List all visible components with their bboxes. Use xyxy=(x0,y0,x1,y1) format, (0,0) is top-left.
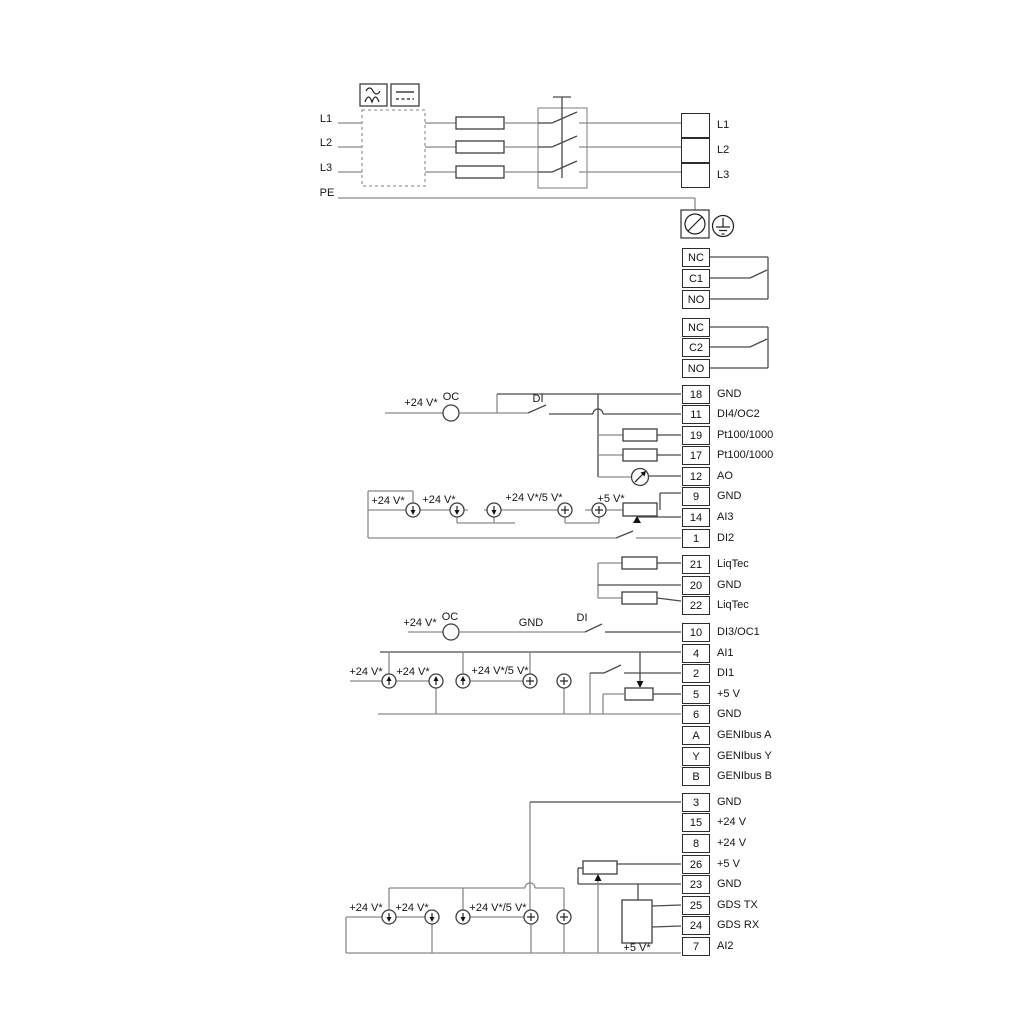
potentiometer-ai2 xyxy=(583,861,617,874)
liqtec-resistor-2 xyxy=(622,592,657,604)
terminal-label-8: +24 V xyxy=(717,837,746,849)
terminal-25: 25 xyxy=(682,896,710,915)
terminal-label-19: Pt100/1000 xyxy=(717,429,773,441)
terminal-label-17: Pt100/1000 xyxy=(717,449,773,461)
voltage-source-icon xyxy=(557,674,571,688)
gnd-label: GND xyxy=(519,617,543,629)
terminal-label-A: GENIbus A xyxy=(717,729,771,741)
voltage-source-icon xyxy=(592,503,606,517)
liqtec-wiring xyxy=(598,557,681,604)
terminal-label-B: GENIbus B xyxy=(717,770,772,782)
terminal-label-21: LiqTec xyxy=(717,558,749,570)
terminal-11: 11 xyxy=(682,405,710,424)
v24-label: +24 V* xyxy=(404,397,437,409)
terminal-15: 15 xyxy=(682,813,710,832)
v24-label: +24 V* xyxy=(349,666,382,678)
terminal-Y: Y xyxy=(682,747,710,766)
mains-l2-label: L2 xyxy=(320,137,332,149)
relay-2-blade xyxy=(750,339,767,347)
v24-label: +24 V* xyxy=(422,494,455,506)
relay-1-contact xyxy=(710,257,768,299)
terminal-label-18: GND xyxy=(717,388,741,400)
terminal-22: 22 xyxy=(682,596,710,615)
terminal-NC: NC xyxy=(682,248,710,267)
mains-l3-label: L3 xyxy=(320,162,332,174)
current-source-icon xyxy=(382,674,396,688)
gds-sensor-box xyxy=(622,900,652,943)
oc1-circle xyxy=(443,624,459,640)
terminal-NO: NO xyxy=(682,359,710,378)
terminal-NO: NO xyxy=(682,290,710,309)
terminal-label-6: GND xyxy=(717,708,741,720)
terminal-12: 12 xyxy=(682,467,710,486)
terminal-2: 2 xyxy=(682,664,710,683)
mains-out-terminal-L3 xyxy=(681,163,710,188)
terminal-9: 9 xyxy=(682,487,710,506)
terminal-label-1: DI2 xyxy=(717,532,734,544)
terminal-label-14: AI3 xyxy=(717,511,734,523)
terminal-label-11: DI4/OC2 xyxy=(717,408,760,420)
mains-l1-label: L1 xyxy=(320,113,332,125)
terminal-NC: NC xyxy=(682,318,710,337)
main-switch-blades xyxy=(538,112,681,172)
current-sink-icon xyxy=(487,503,501,517)
oc-label: OC xyxy=(442,611,459,623)
relay-1-blade xyxy=(750,270,767,278)
ai2-gds-wiring xyxy=(346,802,681,953)
di-label: DI xyxy=(533,393,544,405)
terminal-label-7: AI2 xyxy=(717,940,734,952)
mains-out-label-L1: L1 xyxy=(717,119,729,131)
terminal-5: 5 xyxy=(682,685,710,704)
potentiometer-ai1 xyxy=(625,688,653,700)
current-sink-icon xyxy=(406,503,420,517)
v24-label: +24 V* xyxy=(396,666,429,678)
terminal-label-2: DI1 xyxy=(717,667,734,679)
v24-5v-label: +24 V*/5 V* xyxy=(471,665,528,677)
terminal-label-10: DI3/OC1 xyxy=(717,626,760,638)
mains-out-terminal-L1 xyxy=(681,113,710,138)
terminal-20: 20 xyxy=(682,576,710,595)
fuse-l2 xyxy=(456,141,504,153)
terminal-A: A xyxy=(682,726,710,745)
terminal-label-24: GDS RX xyxy=(717,919,759,931)
terminal-3: 3 xyxy=(682,793,710,812)
terminal-19: 19 xyxy=(682,426,710,445)
v24-label: +24 V* xyxy=(395,902,428,914)
terminal-23: 23 xyxy=(682,875,710,894)
mains-out-label-L3: L3 xyxy=(717,169,729,181)
mains-out-terminal-L2 xyxy=(681,138,710,163)
voltage-source-icon xyxy=(558,503,572,517)
wiper-arrow xyxy=(595,874,602,881)
mains-out-label-L2: L2 xyxy=(717,144,729,156)
terminal-8: 8 xyxy=(682,834,710,853)
pt100-resistor-2 xyxy=(623,449,657,461)
di-label: DI xyxy=(577,612,588,624)
terminal-10: 10 xyxy=(682,623,710,642)
terminal-24: 24 xyxy=(682,916,710,935)
terminal-label-23: GND xyxy=(717,878,741,890)
oc2-circle xyxy=(443,405,459,421)
di2-switch-blade xyxy=(616,531,633,538)
ai1-di1-wiring xyxy=(350,652,681,714)
fuse-l1 xyxy=(456,117,504,129)
terminal-label-3: GND xyxy=(717,796,741,808)
earth-symbol xyxy=(713,216,734,237)
drive-input-box xyxy=(362,110,425,186)
fuse-l3 xyxy=(456,166,504,178)
relay-2-contact xyxy=(710,327,768,368)
terminal-21: 21 xyxy=(682,555,710,574)
terminal-label-22: LiqTec xyxy=(717,599,749,611)
terminal-label-20: GND xyxy=(717,579,741,591)
terminal-label-12: AO xyxy=(717,470,733,482)
terminal-1: 1 xyxy=(682,529,710,548)
v24-label: +24 V* xyxy=(349,902,382,914)
dc-symbol-box xyxy=(391,84,419,106)
terminal-label-Y: GENIbus Y xyxy=(717,750,772,762)
voltage-source-icon xyxy=(557,910,571,924)
terminal-label-25: GDS TX xyxy=(717,899,758,911)
di1-switch-blade xyxy=(604,665,621,673)
terminal-label-15: +24 V xyxy=(717,816,746,828)
v24-5v-label: +24 V*/5 V* xyxy=(505,492,562,504)
wiring-diagram: L1 L2 L3 PE +24 V* OC DI +24 V* +24 V* +… xyxy=(0,0,1024,1024)
terminal-6: 6 xyxy=(682,705,710,724)
v5-label: +5 V* xyxy=(623,942,650,954)
v5-label: +5 V* xyxy=(597,493,624,505)
terminal-17: 17 xyxy=(682,446,710,465)
current-source-icon xyxy=(456,674,470,688)
v24-label: +24 V* xyxy=(371,495,404,507)
di3-switch-blade xyxy=(585,624,602,632)
terminal-label-9: GND xyxy=(717,490,741,502)
current-sink-icon xyxy=(456,910,470,924)
terminal-label-26: +5 V xyxy=(717,858,740,870)
pt100-resistor-1 xyxy=(623,429,657,441)
v24-5v-label: +24 V*/5 V* xyxy=(469,902,526,914)
terminal-label-4: AI1 xyxy=(717,647,734,659)
mains-pe-label: PE xyxy=(320,187,335,199)
di3-oc1-wiring xyxy=(408,624,681,640)
di4-switch-blade xyxy=(528,405,546,413)
wiring-svg xyxy=(0,0,1024,1024)
mains-input-wiring xyxy=(338,84,734,238)
terminal-26: 26 xyxy=(682,855,710,874)
terminal-4: 4 xyxy=(682,644,710,663)
current-sink-icon xyxy=(382,910,396,924)
terminal-C2: C2 xyxy=(682,338,710,357)
terminal-18: 18 xyxy=(682,385,710,404)
ac-symbol-box xyxy=(360,84,387,106)
current-source-icon xyxy=(429,674,443,688)
wiper-arrow xyxy=(637,681,644,688)
terminal-7: 7 xyxy=(682,937,710,956)
terminal-label-5: +5 V xyxy=(717,688,740,700)
potentiometer-ai3 xyxy=(623,503,657,516)
terminal-C1: C1 xyxy=(682,269,710,288)
terminal-B: B xyxy=(682,767,710,786)
oc-label: OC xyxy=(443,391,460,403)
terminal-14: 14 xyxy=(682,508,710,527)
liqtec-resistor-1 xyxy=(622,557,657,569)
v24-label: +24 V* xyxy=(403,617,436,629)
